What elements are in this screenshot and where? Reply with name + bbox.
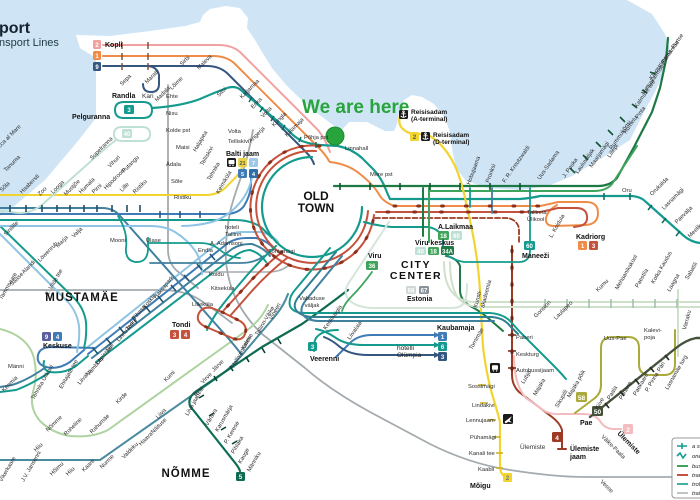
svg-text:Kaubamaja: Kaubamaja <box>437 325 474 332</box>
svg-text:MUSTAMÄE: MUSTAMÄE <box>45 291 119 304</box>
svg-text:nsport Lines: nsport Lines <box>0 37 59 49</box>
svg-text:train: train <box>692 491 700 497</box>
svg-text:Tallinna: Tallinna <box>527 210 547 216</box>
svg-text:Kaabli: Kaabli <box>478 467 494 473</box>
svg-text:Lindakivi: Lindakivi <box>472 403 495 409</box>
svg-text:Maneeži: Maneeži <box>522 253 549 260</box>
svg-text:Pühamägi: Pühamägi <box>470 435 496 441</box>
svg-text:Mõigu: Mõigu <box>470 483 491 490</box>
svg-text:Koidu: Koidu <box>209 272 224 278</box>
svg-text:Ädala: Ädala <box>166 161 182 168</box>
svg-text:(A-terminal): (A-terminal) <box>411 116 447 123</box>
svg-text:jaam: jaam <box>569 454 586 461</box>
svg-text:Kadriorg: Kadriorg <box>576 234 605 241</box>
svg-text:2: 2 <box>626 427 630 434</box>
svg-text:Volta: Volta <box>228 129 242 135</box>
svg-text:tram: tram <box>692 473 700 479</box>
svg-text:Maisi: Maisi <box>176 145 190 151</box>
svg-text:68: 68 <box>408 289 415 295</box>
svg-text:60: 60 <box>453 234 460 240</box>
svg-text:Kitseküla: Kitseküla <box>211 286 235 292</box>
svg-text:58: 58 <box>578 395 586 402</box>
svg-text:A. Adamsoni: A. Adamsoni <box>210 241 243 247</box>
svg-text:one: one <box>692 454 700 460</box>
svg-text:CENTER: CENTER <box>390 270 442 282</box>
svg-text:Kalevi-: Kalevi- <box>644 328 662 334</box>
svg-text:Endla: Endla <box>198 248 214 254</box>
svg-text:60: 60 <box>526 244 533 250</box>
svg-text:Pelguranna: Pelguranna <box>72 114 110 121</box>
svg-text:A.Laikmaa: A.Laikmaa <box>438 224 473 231</box>
svg-text:Tallinn: Tallinn <box>225 232 241 238</box>
svg-text:40: 40 <box>124 132 131 138</box>
svg-text:4: 4 <box>555 435 559 442</box>
svg-text:Lilleküla: Lilleküla <box>192 302 214 308</box>
svg-text:Estonia: Estonia <box>407 296 432 303</box>
svg-text:Reisisadam: Reisisadam <box>411 109 447 116</box>
svg-text:Paberi: Paberi <box>516 335 533 341</box>
svg-text:Linnahall: Linnahall <box>345 146 368 152</box>
svg-text:a sto: a sto <box>692 444 700 450</box>
svg-text:Ristiku: Ristiku <box>174 195 191 201</box>
svg-text:(D-terminal): (D-terminal) <box>433 139 469 146</box>
svg-text:40: 40 <box>417 250 424 256</box>
svg-text:Viru: Viru <box>368 253 382 260</box>
svg-text:Randla: Randla <box>112 93 135 100</box>
svg-text:Mooni: Mooni <box>110 238 126 244</box>
svg-text:Ülikool: Ülikool <box>527 216 544 223</box>
svg-text:TOWN: TOWN <box>298 201 334 215</box>
svg-text:Olümpia: Olümpia <box>397 352 422 359</box>
svg-text:Kolde pst: Kolde pst <box>166 128 191 134</box>
svg-text:Ehte: Ehte <box>166 94 178 100</box>
svg-text:Ülemiste: Ülemiste <box>520 443 546 451</box>
svg-text:Reisisadam: Reisisadam <box>433 132 469 139</box>
svg-text:Männi: Männi <box>8 364 24 370</box>
svg-text:poja: poja <box>644 335 656 341</box>
svg-text:Telliskivi: Telliskivi <box>228 139 249 145</box>
svg-text:Ülase: Ülase <box>146 237 161 244</box>
svg-text:hotelli: hotelli <box>397 345 414 352</box>
svg-text:Pae: Pae <box>580 420 593 427</box>
svg-text:Kari: Kari <box>142 93 154 100</box>
svg-text:Uus-Pae: Uus-Pae <box>604 336 627 342</box>
svg-text:Keskuse: Keskuse <box>43 343 72 350</box>
svg-text:väljak: väljak <box>305 303 320 309</box>
svg-text:Vabaduse: Vabaduse <box>299 296 325 302</box>
svg-text:Lennujaam: Lennujaam <box>466 418 495 424</box>
svg-text:34A: 34A <box>442 250 454 256</box>
svg-text:We are here: We are here <box>302 97 409 118</box>
svg-text:18: 18 <box>430 250 437 256</box>
svg-text:bus a: bus a <box>692 464 700 470</box>
svg-text:5: 5 <box>241 172 244 178</box>
svg-text:Viru keskus: Viru keskus <box>415 240 454 247</box>
svg-text:67: 67 <box>421 289 428 295</box>
svg-text:Autobussijaam: Autobussijaam <box>516 368 554 374</box>
svg-text:Veerenni: Veerenni <box>310 356 339 363</box>
svg-text:NÕMME: NÕMME <box>161 467 210 480</box>
svg-text:Keskturg: Keskturg <box>516 352 539 358</box>
svg-text:7: 7 <box>252 161 255 167</box>
svg-text:Tõnismägi: Tõnismägi <box>268 249 295 255</box>
svg-text:trolle: trolle <box>692 482 700 488</box>
svg-text:Mere pst: Mere pst <box>370 172 393 178</box>
svg-text:Tondi: Tondi <box>172 322 191 329</box>
svg-text:Balti jaam: Balti jaam <box>226 151 259 158</box>
svg-text:Oru: Oru <box>622 188 632 194</box>
svg-text:Nisu: Nisu <box>166 111 178 117</box>
svg-text:Põhja pst: Põhja pst <box>304 135 329 141</box>
svg-text:Sossimägi: Sossimägi <box>468 384 495 390</box>
svg-text:hoteli: hoteli <box>225 225 239 231</box>
svg-text:Ülemiste: Ülemiste <box>570 444 599 453</box>
svg-text:36: 36 <box>369 264 376 270</box>
svg-text:Kanali tee: Kanali tee <box>469 451 495 457</box>
svg-text:port: port <box>0 20 31 37</box>
svg-text:21: 21 <box>239 161 245 167</box>
svg-text:Kopli: Kopli <box>105 42 123 49</box>
svg-text:Sõle: Sõle <box>171 179 183 185</box>
